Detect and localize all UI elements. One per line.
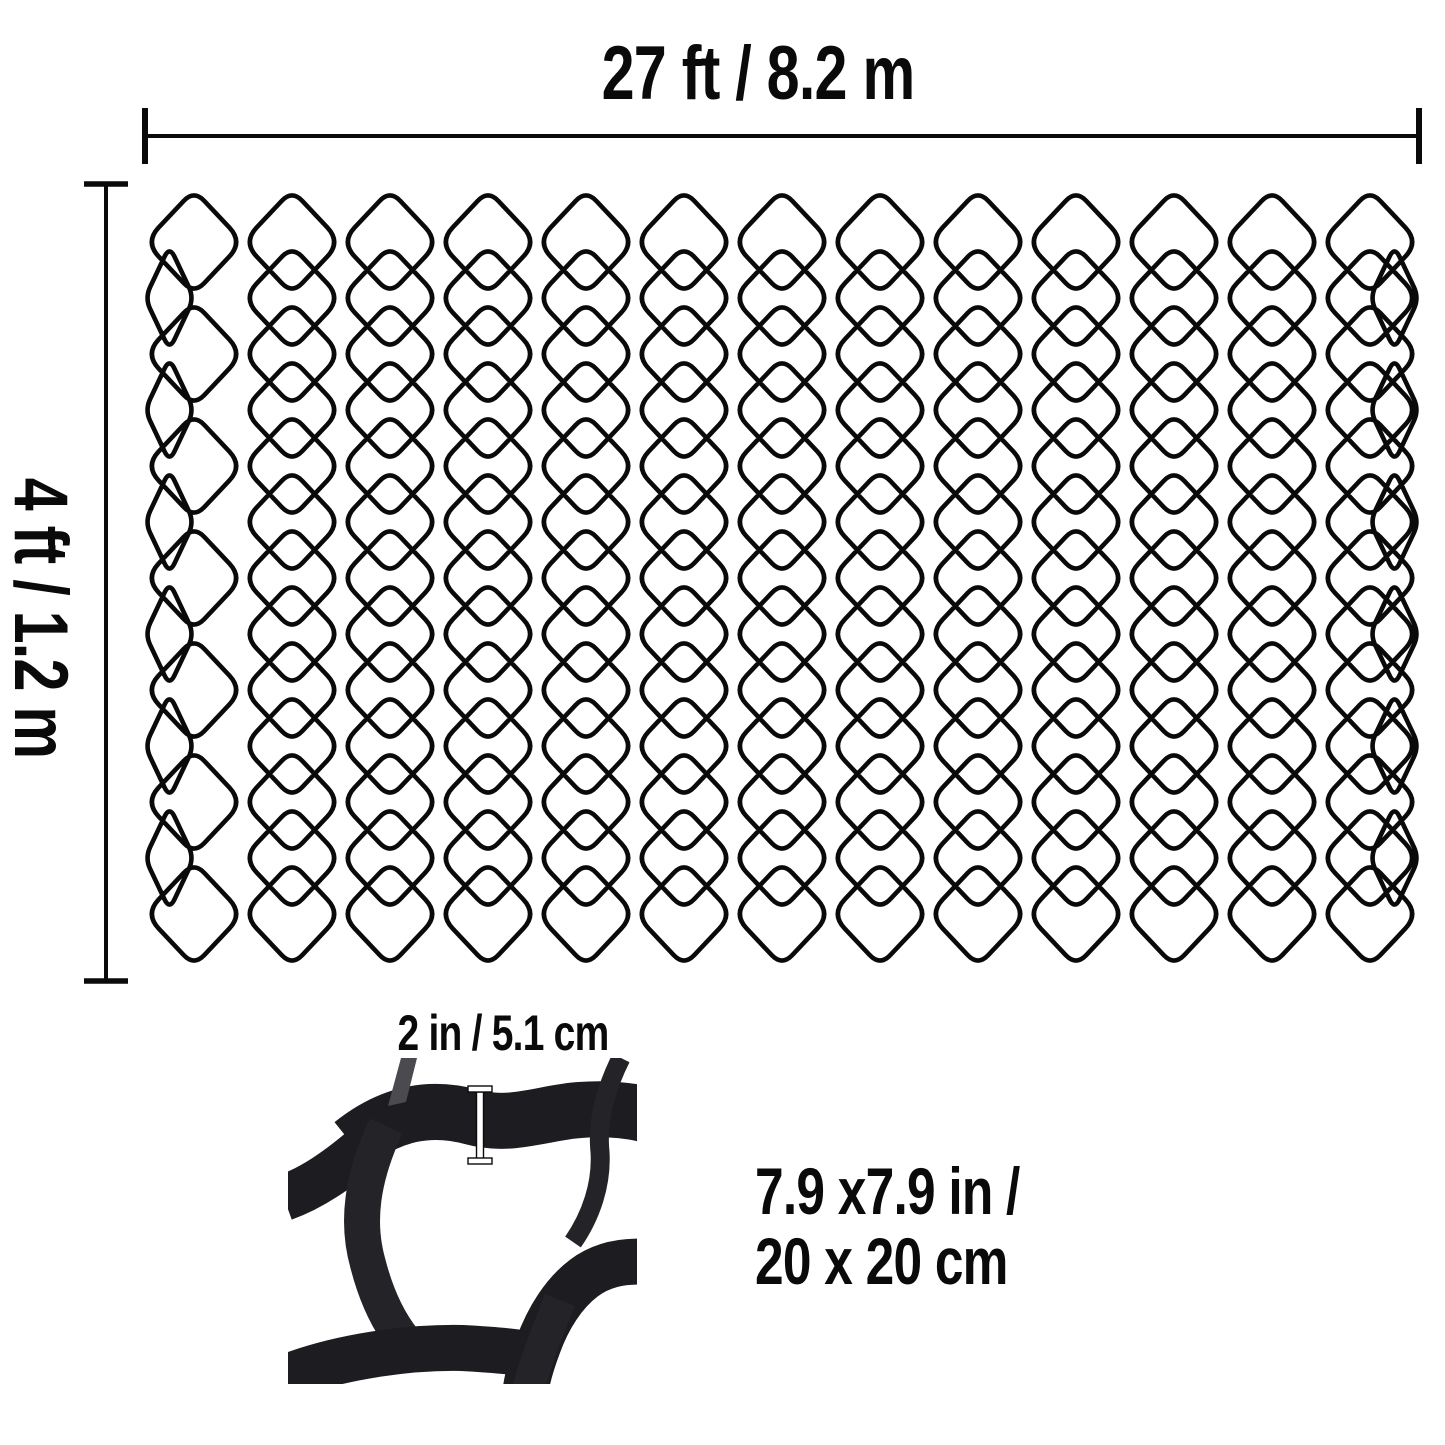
product-dimension-diagram: 27 ft / 8.2 m 4 ft / 1.2 m 2 in / 5.1 cm…	[0, 0, 1445, 1445]
vertical-dimension-line	[84, 184, 128, 981]
cell-size-line1: 7.9 x7.9 in /	[755, 1156, 1020, 1226]
cell-size-label: 7.9 x7.9 in / 20 x 20 cm	[755, 1156, 1020, 1296]
diagram-canvas	[0, 0, 1445, 1445]
horizontal-dimension-line	[145, 108, 1419, 164]
side-dimension-label: 4 ft / 1.2 m	[2, 384, 78, 852]
cell-size-line2: 20 x 20 cm	[755, 1226, 1020, 1296]
cell-depth-label: 2 in / 5.1 cm	[347, 1008, 659, 1058]
cell-closeup-photo	[284, 1058, 648, 1390]
grid-mesh-panel	[148, 195, 1417, 960]
top-dimension-label: 27 ft / 8.2 m	[524, 36, 992, 112]
